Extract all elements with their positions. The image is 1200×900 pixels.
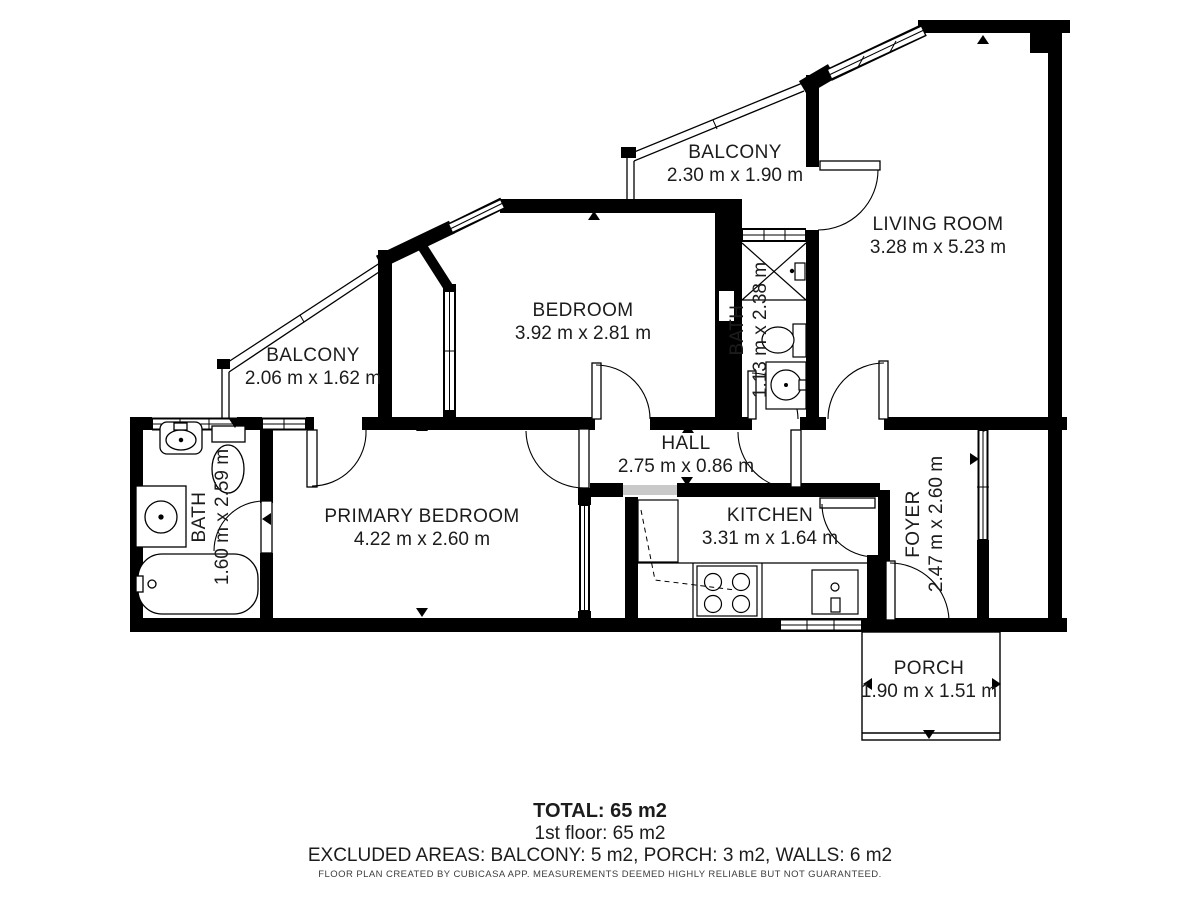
disclaimer: FLOOR PLAN CREATED BY CUBICASA APP. MEAS… [0,869,1200,880]
total-area: TOTAL: 65 m2 [0,800,1200,823]
porch-outline [862,632,1000,740]
plan-summary: TOTAL: 65 m2 1st floor: 65 m2 EXCLUDED A… [0,800,1200,867]
floor-plan-drawing [0,0,1200,900]
bath-left-fixtures [136,422,258,614]
floor-area: 1st floor: 65 m2 [0,823,1200,845]
floor-plan: BALCONY 2.30 m x 1.90 m LIVING ROOM 3.28… [0,0,1200,900]
kitchen-fixtures [638,500,867,618]
excluded-areas: EXCLUDED AREAS: BALCONY: 5 m2, PORCH: 3 … [0,845,1200,867]
